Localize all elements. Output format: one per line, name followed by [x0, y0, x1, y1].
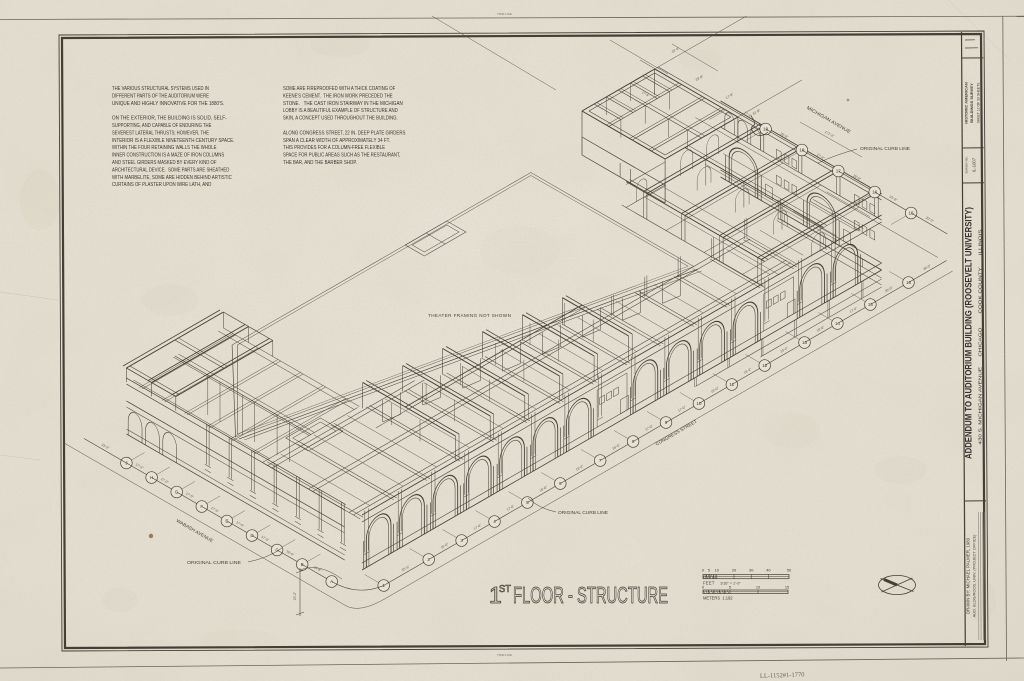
svg-text:HISTORIC AMERICAN: HISTORIC AMERICAN	[964, 82, 969, 124]
svg-text:FLOOR - STRUCTURE: FLOOR - STRUCTURE	[513, 582, 668, 608]
svg-text:DIFFERENT PARTS OF THE AUDITOR: DIFFERENT PARTS OF THE AUDITORIUM WERE	[112, 93, 209, 99]
svg-text:UNIQUE AND HIGHLY INNOVATIVE F: UNIQUE AND HIGHLY INNOVATIVE FOR THE 188…	[112, 101, 225, 107]
svg-text:FEET: FEET	[703, 581, 715, 586]
svg-text:9: 9	[665, 420, 668, 425]
svg-text:BUILDINGS SURVEY: BUILDINGS SURVEY	[969, 83, 974, 123]
svg-text:CURTAINS OF PLASTER UPON WIRE: CURTAINS OF PLASTER UPON WIRE LATH, AND	[112, 182, 211, 188]
svg-text:3: 3	[460, 538, 463, 543]
svg-text:5: 5	[526, 500, 529, 505]
svg-text:ALONG CONGRESS STREET, 22 IN.: ALONG CONGRESS STREET, 22 IN. DEEP PLATE…	[283, 130, 406, 136]
svg-text:AND STEEL GIRDERS MASKED BY EV: AND STEEL GIRDERS MASKED BY EVERY KIND O…	[112, 160, 217, 166]
svg-text:SPACE FOR PUBLIC AREAS SUCH AS: SPACE FOR PUBLIC AREAS SUCH AS THE RESTA…	[283, 153, 401, 159]
svg-text:11: 11	[729, 382, 734, 387]
svg-text:15: 15	[785, 585, 789, 590]
svg-text:6: 6	[559, 481, 562, 486]
svg-text:METERS 1:192: METERS 1:192	[703, 596, 733, 601]
svg-text:THE VARIOUS STRUCTURAL SYSTEMS: THE VARIOUS STRUCTURAL SYSTEMS USED IN	[112, 86, 209, 92]
svg-text:IL-1007: IL-1007	[972, 157, 977, 172]
svg-text:WITHIN THE FOUR RETAINING WALL: WITHIN THE FOUR RETAINING WALLS THE WHOL…	[112, 145, 217, 151]
svg-text:THEATER FRAMING NOT SHOWN: THEATER FRAMING NOT SHOWN	[428, 313, 511, 318]
svg-text:WITH MARBELITE, SOME ARE HIDDE: WITH MARBELITE, SOME ARE HIDDEN BEHIND A…	[112, 175, 232, 181]
svg-text:23'-2": 23'-2"	[293, 591, 297, 600]
svg-text:STONE. THE CAST IRON STAIRWA: STONE. THE CAST IRON STAIRWAY IN THE MIC…	[283, 101, 403, 107]
svg-text:TRIM LINE: TRIM LINE	[497, 653, 512, 657]
svg-text:SHEET 12 OF 33 SHEETS: SHEET 12 OF 33 SHEETS	[977, 82, 981, 124]
svg-text:SKIN, A CONCEPT USED THROUGHOU: SKIN, A CONCEPT USED THROUGHOUT THE BUIL…	[283, 116, 398, 122]
svg-text:ORIGINAL CURB LINE: ORIGINAL CURB LINE	[860, 146, 910, 151]
svg-text:THIS PROVIDES FOR A COLUMN-FRE: THIS PROVIDES FOR A COLUMN-FREE FLEXIBLE	[283, 145, 385, 151]
svg-text:ON THE EXTERIOR, THE BUILDING: ON THE EXTERIOR, THE BUILDING IS SOLID, …	[112, 116, 227, 122]
svg-text:4: 4	[493, 519, 496, 524]
svg-text:5: 5	[708, 568, 710, 573]
svg-text:ORIGINAL CURB LINE: ORIGINAL CURB LINE	[558, 510, 608, 515]
svg-text:SUPPORTING, AND CAPABLE OF END: SUPPORTING, AND CAPABLE OF ENDURING THE	[112, 123, 212, 129]
svg-text:SURVEY NO.: SURVEY NO.	[965, 156, 969, 173]
svg-text:ARCHITECTURAL DEVICE. SOME PA: ARCHITECTURAL DEVICE. SOME PARTS ARE SHE…	[112, 167, 229, 173]
svg-text:THE BAR, AND THE BARBER SHOP.: THE BAR, AND THE BARBER SHOP.	[283, 160, 357, 166]
svg-text:SEVEREST LATERAL THRUSTS; HOWE: SEVEREST LATERAL THRUSTS; HOWEVER, THE	[112, 130, 209, 136]
svg-text:ST: ST	[499, 584, 511, 595]
svg-text:ORIGINAL CURB LINE: ORIGINAL CURB LINE	[187, 560, 241, 565]
svg-text:DRAWN BY: MICHAEL PALMER, 1983: DRAWN BY: MICHAEL PALMER, 1983	[966, 537, 971, 614]
svg-text:KEENE'S CEMENT. THE IRON WORK: KEENE'S CEMENT. THE IRON WORK PRECEDED T…	[283, 93, 393, 99]
svg-text:ADDENDUM TO AUDITORIUM BUILDIN: ADDENDUM TO AUDITORIUM BUILDING (ROOSEVE…	[964, 207, 974, 459]
svg-text:LOBBY IS A BEAUTIFUL EXAMPLE O: LOBBY IS A BEAUTIFUL EXAMPLE OF STRUCTUR…	[283, 108, 398, 114]
svg-text:INNER CONSTRUCTION IS A MAZE O: INNER CONSTRUCTION IS A MAZE OF IRON COL…	[112, 153, 224, 159]
svg-text:430 S. MICHIGAN AVENUE CH: 430 S. MICHIGAN AVENUE CHICAGO COOK COUN…	[978, 229, 983, 444]
svg-text:8: 8	[632, 439, 635, 444]
svg-text:2: 2	[427, 557, 430, 562]
svg-text:AUD. BLDG/ROOS. UNIV. (PROJECT: AUD. BLDG/ROOS. UNIV. (PROJECT OFFICE)	[972, 534, 977, 617]
svg-text:SOME ARE FIREPROOFED WITH A TH: SOME ARE FIREPROOFED WITH A THICK COATIN…	[283, 86, 396, 92]
svg-text:5: 5	[729, 585, 731, 590]
svg-text:TRIM LINE: TRIM LINE	[497, 12, 512, 16]
svg-text:SPAN A CLEAR WIDTH OF APPROXIM: SPAN A CLEAR WIDTH OF APPROXIMATELY 34 F…	[283, 138, 390, 144]
svg-text:7: 7	[599, 458, 602, 463]
svg-text:INTERIOR IS A FLEXIBLE NINETEE: INTERIOR IS A FLEXIBLE NINETEENTH CENTUR…	[112, 138, 235, 144]
